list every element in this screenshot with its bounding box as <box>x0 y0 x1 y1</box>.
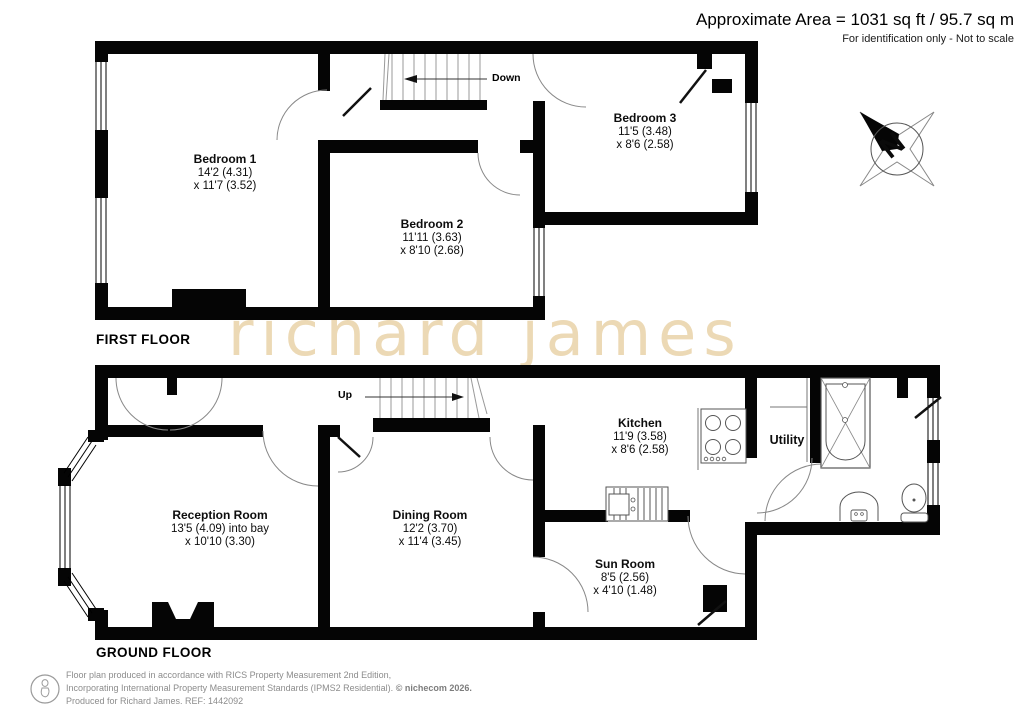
cupboard-door-leaf <box>680 70 706 103</box>
floorplan-page: richard james <box>0 0 1024 723</box>
window-bedroom3 <box>744 103 759 192</box>
bay-window <box>58 430 104 621</box>
ground-floor-plan <box>58 365 941 640</box>
toilet-icon <box>901 484 928 522</box>
window-utility-extension-2 <box>926 463 941 505</box>
up-arrow-icon <box>452 393 464 401</box>
nichecom-logo-icon <box>31 675 59 703</box>
window-bedroom1-upper <box>94 62 109 130</box>
utility-worktop <box>770 378 807 462</box>
fireplace-reception <box>152 602 214 627</box>
chimney-breast-ff <box>172 289 246 308</box>
down-arrow-icon <box>404 75 417 83</box>
bath-icon <box>821 378 870 468</box>
landing-door-leaf <box>343 88 371 116</box>
compass-icon <box>860 112 934 186</box>
window-bedroom2 <box>532 228 546 296</box>
first-floor-plan <box>94 41 759 320</box>
stairs-first-floor <box>380 54 487 110</box>
basin-icon <box>840 492 878 521</box>
kitchen-sink-icon <box>606 487 668 521</box>
floorplan-drawing <box>0 0 1024 723</box>
dining-door-leaf <box>338 437 360 457</box>
window-bedroom1-lower <box>94 198 109 283</box>
hob-icon <box>698 408 746 470</box>
stairs-ground-floor <box>365 378 487 418</box>
